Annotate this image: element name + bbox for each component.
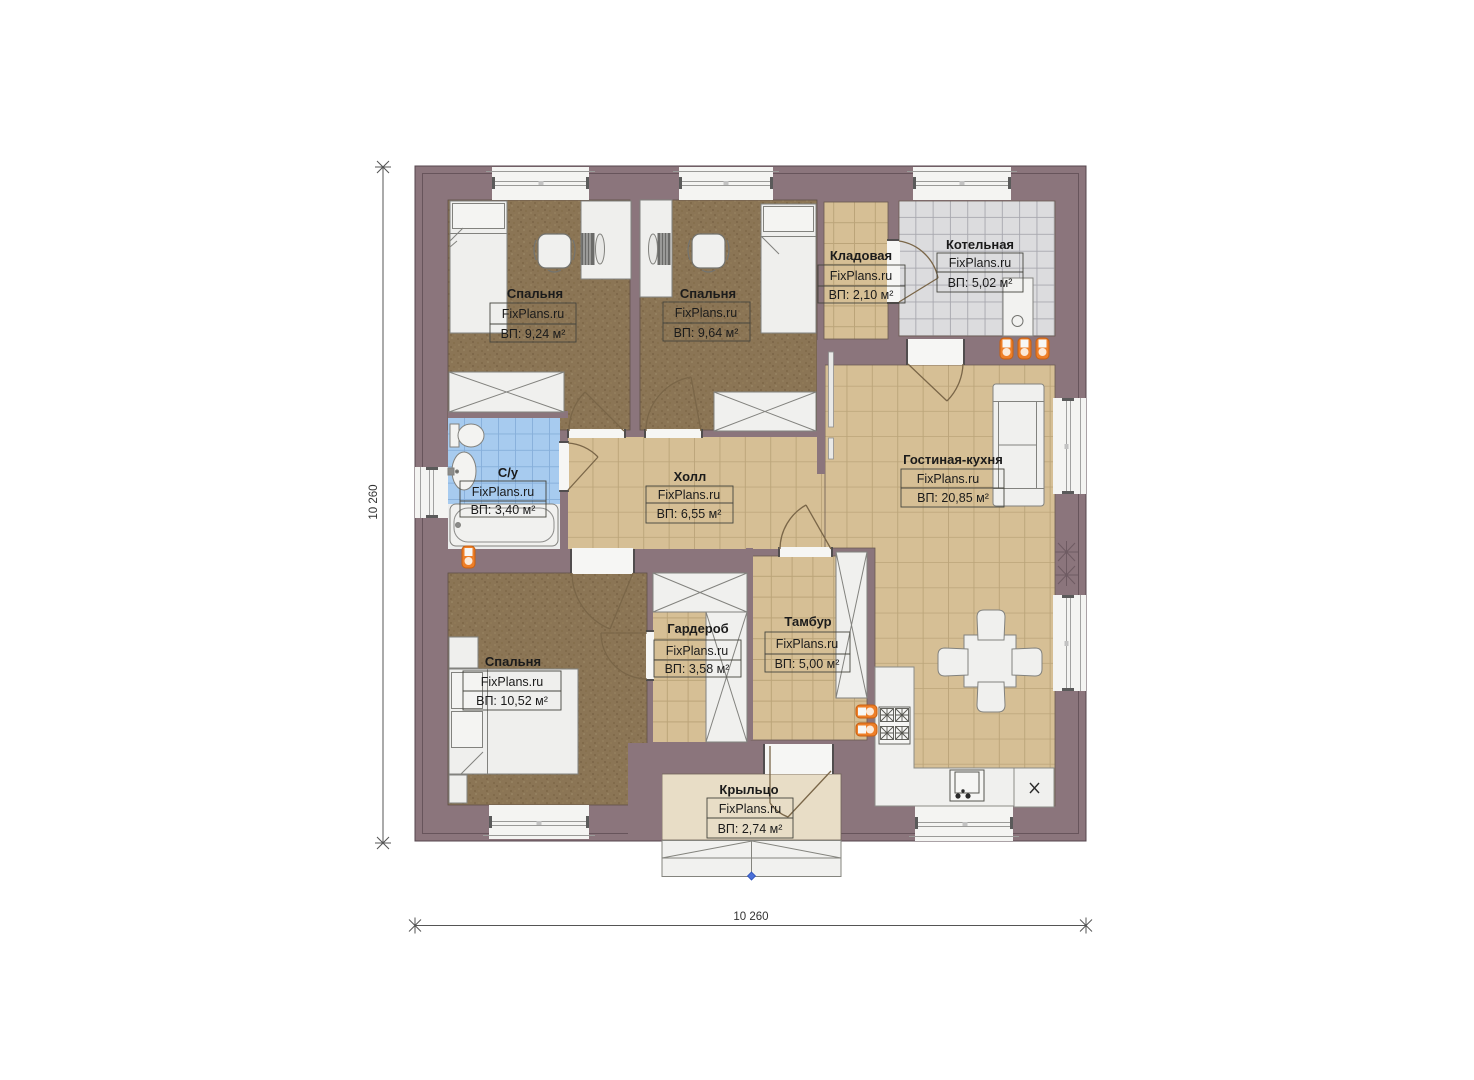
svg-text:FixPlans.ru: FixPlans.ru: [719, 802, 782, 816]
svg-text:Кладовая: Кладовая: [830, 248, 892, 263]
svg-text:ВП: 10,52 м²: ВП: 10,52 м²: [476, 694, 548, 708]
svg-text:ВП: 2,10 м²: ВП: 2,10 м²: [829, 288, 894, 302]
svg-text:Спальня: Спальня: [507, 286, 563, 301]
svg-text:ВП: 3,58 м²: ВП: 3,58 м²: [665, 662, 730, 676]
svg-text:Тамбур: Тамбур: [784, 614, 831, 629]
svg-text:10 260: 10 260: [733, 911, 768, 923]
svg-text:FixPlans.ru: FixPlans.ru: [472, 485, 535, 499]
svg-text:FixPlans.ru: FixPlans.ru: [830, 269, 893, 283]
svg-text:ВП: 3,40 м²: ВП: 3,40 м²: [471, 503, 536, 517]
svg-text:FixPlans.ru: FixPlans.ru: [675, 306, 738, 320]
svg-text:Спальня: Спальня: [680, 286, 736, 301]
svg-text:ВП: 5,02 м²: ВП: 5,02 м²: [948, 276, 1013, 290]
svg-text:FixPlans.ru: FixPlans.ru: [502, 307, 565, 321]
svg-text:Котельная: Котельная: [946, 237, 1014, 252]
svg-text:ВП: 20,85 м²: ВП: 20,85 м²: [917, 491, 989, 505]
svg-text:ВП: 2,74 м²: ВП: 2,74 м²: [718, 822, 783, 836]
svg-text:FixPlans.ru: FixPlans.ru: [666, 644, 729, 658]
svg-text:Гардероб: Гардероб: [667, 621, 728, 636]
svg-text:ВП: 6,55 м²: ВП: 6,55 м²: [657, 507, 722, 521]
svg-text:ВП: 9,24 м²: ВП: 9,24 м²: [501, 327, 566, 341]
svg-text:ВП: 9,64 м²: ВП: 9,64 м²: [674, 326, 739, 340]
svg-text:FixPlans.ru: FixPlans.ru: [481, 675, 544, 689]
svg-text:FixPlans.ru: FixPlans.ru: [949, 256, 1012, 270]
svg-text:Холл: Холл: [674, 469, 707, 484]
svg-text:FixPlans.ru: FixPlans.ru: [917, 472, 980, 486]
svg-text:ВП: 5,00 м²: ВП: 5,00 м²: [775, 657, 840, 671]
svg-text:FixPlans.ru: FixPlans.ru: [658, 488, 721, 502]
svg-text:10 260: 10 260: [368, 484, 380, 519]
svg-text:Спальня: Спальня: [485, 654, 541, 669]
svg-text:FixPlans.ru: FixPlans.ru: [776, 637, 839, 651]
svg-text:Гостиная-кухня: Гостиная-кухня: [903, 452, 1003, 467]
svg-text:С/у: С/у: [498, 465, 519, 480]
svg-text:Крыльцо: Крыльцо: [719, 782, 778, 797]
